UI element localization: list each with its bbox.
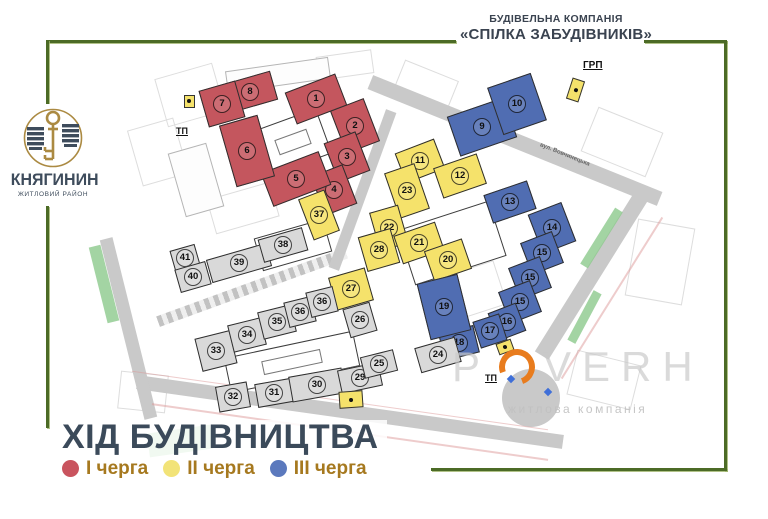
building-number: 26 [351,311,369,329]
building-number: 36 [291,303,309,321]
marker-dot [502,344,507,349]
building-number: 9 [473,118,491,136]
building-number: 31 [265,384,283,402]
building-number: 17 [481,322,499,340]
building-number: 34 [238,326,256,344]
building-number: 10 [508,95,526,113]
tp-label-2: ТП [485,373,497,383]
company-header: БУДІВЕЛЬНА КОМПАНІЯ «СПІЛКА ЗАБУДІВНИКІВ… [456,13,656,43]
building-number: 5 [287,170,305,188]
legend-item-phase3: ІІІ черга [270,458,367,480]
parcel [566,350,641,411]
building-number: 38 [274,236,292,254]
building-25: 25 [360,349,398,379]
building-number: 25 [370,355,388,373]
building-number: 19 [435,298,453,316]
legend-label-phase2: ІІ черга [187,458,255,480]
building-number: 6 [238,142,256,160]
building-number: 39 [230,254,248,272]
building-number: 8 [241,83,259,101]
building-number: 3 [338,148,356,166]
legend-item-phase1: І черга [62,458,148,480]
logo-subtitle: ЖИТЛОВИЙ РАЙОН [8,191,98,198]
tp-label-1: ТП [176,126,188,136]
utility-marker [338,390,363,409]
company-type: БУДІВЕЛЬНА КОМПАНІЯ [456,13,656,25]
company-name: «СПІЛКА ЗАБУДІВНИКІВ» [456,26,656,43]
marker-dot [349,397,353,401]
building-number: 30 [308,376,326,394]
building-number: 1 [307,90,325,108]
building-number: 40 [184,268,202,286]
building-number: 27 [342,280,360,298]
building-number: 35 [268,313,286,331]
building-number: 12 [451,167,469,185]
district-logo: КНЯГИНИН ЖИТЛОВИЙ РАЙОН [8,104,98,200]
utility-marker [565,78,584,103]
phase-legend: І черга ІІ черга ІІІ черга [62,458,379,480]
building-number: 28 [370,241,388,259]
logo-emblem-key-icon [20,106,86,168]
poster-canvas: 8712345637111223222120282791013141515151… [0,0,768,519]
phase3-dot-icon [270,460,287,477]
marker-dot [187,99,191,103]
building-number: 36 [313,293,331,311]
grp-label: ГРП [583,60,603,71]
building-number: 23 [398,182,416,200]
phase2-dot-icon [163,460,180,477]
page-title: ХІД БУДІВНИЦТВА [62,420,379,456]
logo-name: КНЯГИНИН [11,170,96,190]
legend-label-phase1: І черга [86,458,148,480]
building-number: 20 [439,251,457,269]
building-number: 37 [310,206,328,224]
building-36: 36 [305,286,338,318]
legend-label-phase3: ІІІ черга [294,458,367,480]
building-number: 7 [213,95,231,113]
building-32: 32 [215,381,251,412]
building-number: 32 [224,388,242,406]
building-number: 13 [501,193,519,211]
building-number: 33 [207,342,225,360]
building-24: 24 [414,337,462,374]
utility-marker [184,95,195,108]
faint [168,143,225,217]
phase1-dot-icon [62,460,79,477]
legend-item-phase2: ІІ черга [163,458,255,480]
marker-dot [572,87,577,92]
building-number: 21 [410,234,428,252]
building-number: 24 [429,346,447,364]
title-block: ХІД БУДІВНИЦТВА І черга ІІ черга ІІІ чер… [62,420,387,480]
